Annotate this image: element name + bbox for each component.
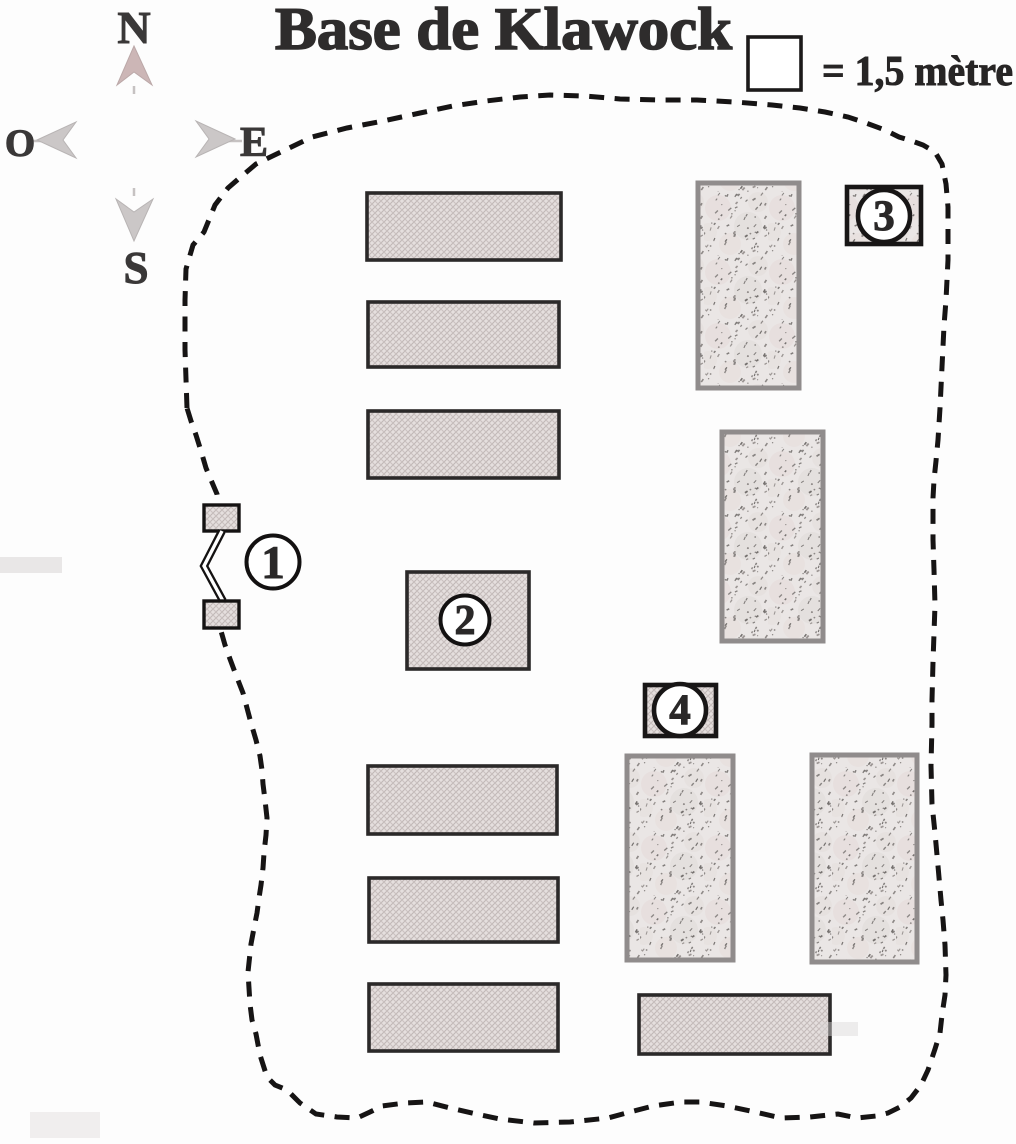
svg-text:E: E: [240, 120, 268, 166]
svg-text:1: 1: [261, 537, 285, 589]
svg-text:S: S: [123, 243, 148, 293]
svg-text:4: 4: [669, 687, 691, 734]
svg-text:3: 3: [873, 193, 895, 240]
svg-text:= 1,5 mètre: = 1,5 mètre: [822, 49, 1013, 95]
svg-text:Base de Klawock: Base de Klawock: [275, 0, 733, 62]
svg-text:O: O: [5, 122, 35, 165]
svg-text:2: 2: [455, 598, 476, 644]
